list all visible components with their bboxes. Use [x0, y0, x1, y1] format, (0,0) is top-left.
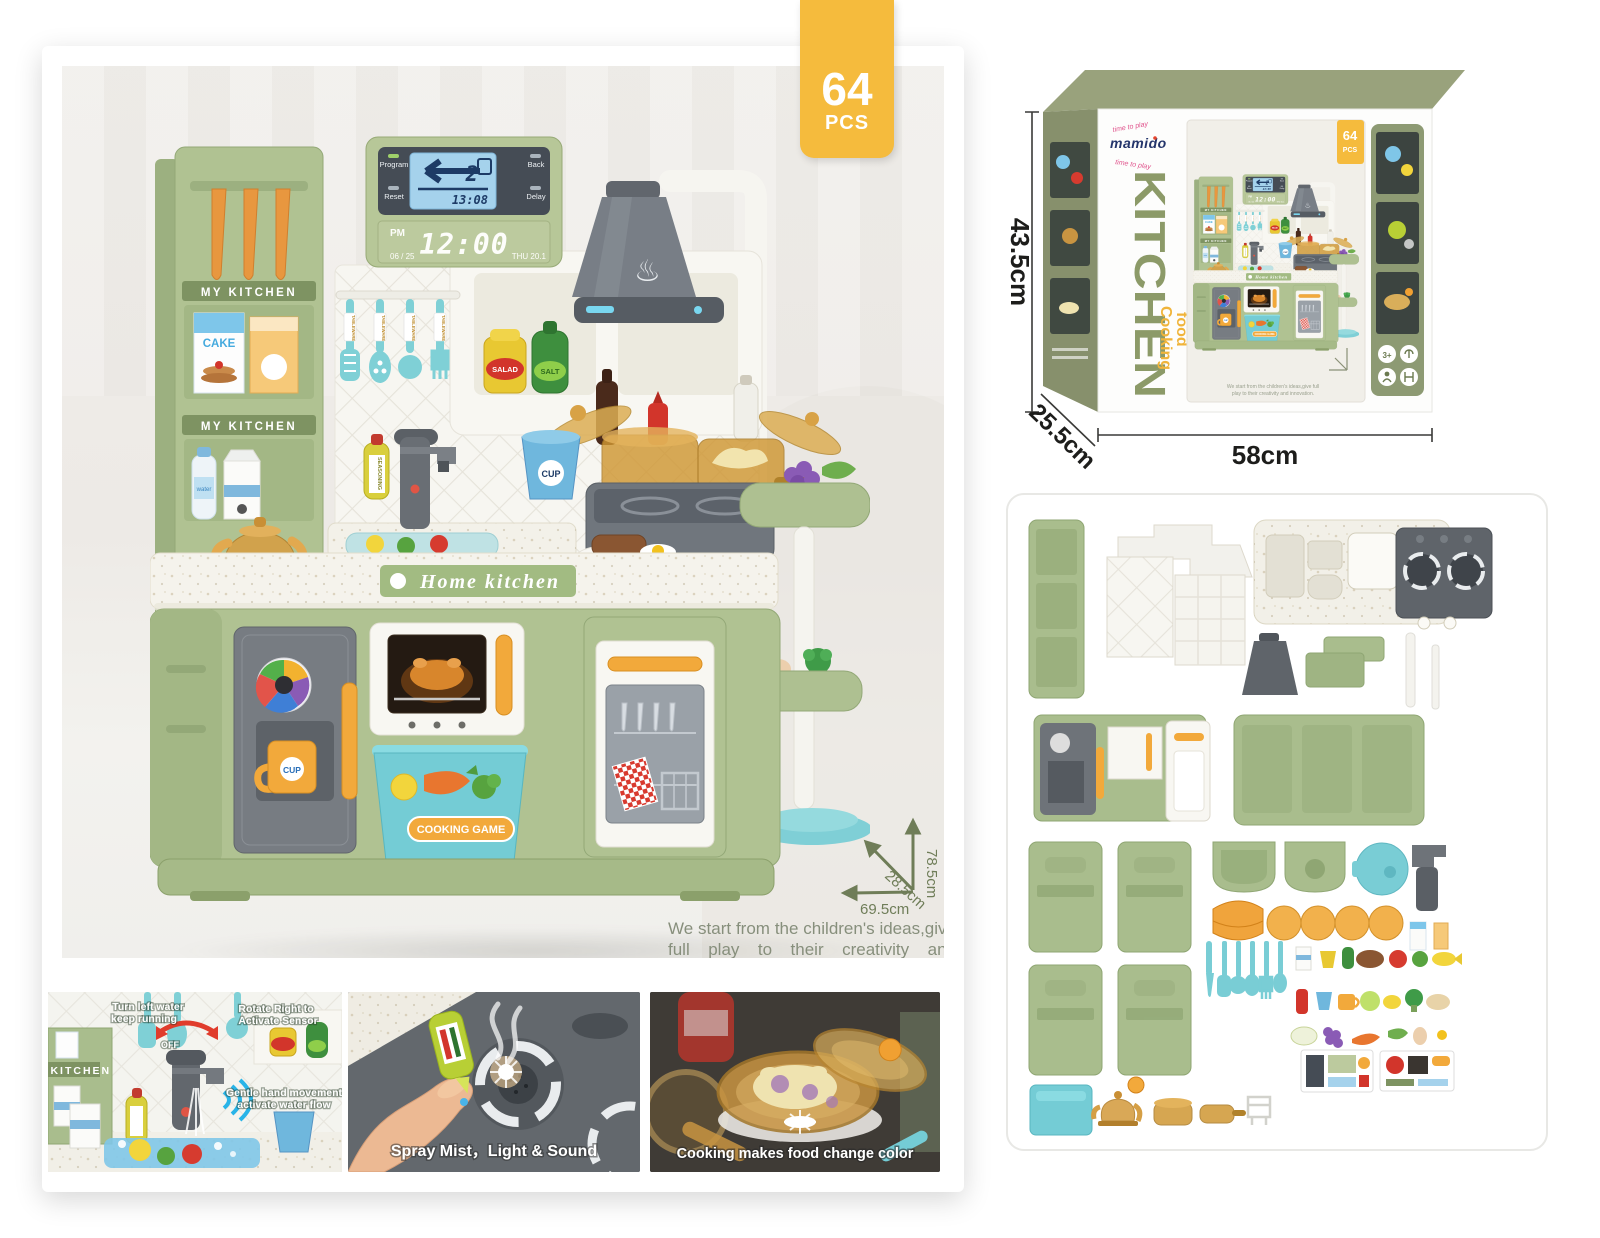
box-top-face	[1043, 70, 1465, 112]
p1-label1-line1: Turn left water	[112, 1001, 184, 1013]
marketing-caption: We start from the children's ideas,give …	[668, 918, 944, 958]
part-hood	[1242, 633, 1298, 695]
part-side-panels	[1029, 842, 1191, 1075]
p1-label2-line1: Rotate Right to	[238, 1003, 313, 1015]
dim-width: 69.5cm	[860, 901, 909, 918]
mini-blue-cup	[274, 1112, 314, 1152]
box-badge-unit: PCS	[1343, 147, 1358, 154]
part-foods-row1	[1296, 947, 1462, 970]
p1-label3-line1: Gentle hand movement	[226, 1087, 342, 1099]
box-right-panel: 3+	[1371, 124, 1424, 396]
main-photo: 78.5cm 28.5cm 69.5cm We start from the c…	[62, 66, 944, 958]
part-small-lid	[1128, 1077, 1144, 1093]
box-caption-line2: play to their creativity and innovation.	[1232, 391, 1314, 397]
part-backsplash	[1107, 525, 1252, 665]
brand-name: mamido	[1110, 135, 1167, 151]
part-stove	[1396, 528, 1492, 629]
box-side-thumbnails	[1050, 142, 1090, 359]
box-product-photo: 64 PCS We start from the children's idea…	[1187, 120, 1365, 402]
part-tubes	[1406, 633, 1439, 709]
part-sticker-sheet-1	[1301, 1050, 1373, 1092]
water-drop	[460, 1098, 468, 1106]
part-foods-row3	[1291, 1027, 1453, 1048]
part-teal-basin	[1030, 1085, 1092, 1135]
part-pan	[1200, 1105, 1246, 1123]
p1-off-label: OFF	[161, 1040, 179, 1050]
part-foods-row2	[1296, 989, 1450, 1014]
part-sinks	[1213, 842, 1345, 892]
part-back-panel	[1234, 715, 1424, 825]
part-sticker-sheet-2	[1380, 1051, 1454, 1091]
dim-height: 78.5cm	[923, 849, 940, 898]
part-teapot	[1094, 1091, 1140, 1126]
feature-photo-spray: Spray Mist，Light & Sound	[348, 992, 640, 1172]
burner-hole	[572, 1013, 628, 1039]
box-badge-count: 64	[1343, 128, 1358, 143]
packaging-box: time to play mamido time to play KITCHEN…	[995, 50, 1520, 470]
parts-overview-panel	[1006, 493, 1548, 1151]
p1-label1-line2: keep running	[111, 1013, 177, 1025]
burner	[472, 1038, 564, 1130]
caption-line2: play to their creativity and innovation.	[668, 940, 944, 958]
box-subtitle-1: Cooking	[1157, 306, 1174, 370]
piece-count-badge: 64 PCS	[800, 0, 894, 158]
part-utensils	[1206, 941, 1287, 999]
piece-count-number: 64	[800, 66, 894, 112]
feature-photo-color-change: Cooking makes food change color	[650, 992, 940, 1172]
part-food-boxes	[1410, 922, 1448, 950]
mini-shelf-label: MY KITCHEN	[48, 1065, 111, 1077]
kitchen-playset-illustration	[150, 85, 870, 905]
part-rack	[1248, 1097, 1270, 1125]
feature-photo-faucet: MY KITCHEN	[48, 992, 342, 1172]
p1-label3-line2: activate water flow	[237, 1099, 331, 1111]
p1-label2-line2: Activate Sensor	[238, 1015, 317, 1027]
part-shelf-frame	[1029, 520, 1084, 698]
box-dim-height: 43.5cm	[1005, 218, 1035, 306]
box-dim-width: 58cm	[1232, 440, 1299, 470]
part-green-brackets	[1306, 637, 1384, 687]
part-teal-lid	[1352, 843, 1408, 895]
part-faucet	[1412, 845, 1446, 911]
part-countertop	[1254, 520, 1492, 629]
p3-caption: Cooking makes food change color	[677, 1146, 914, 1162]
main-product-card: 78.5cm 28.5cm 69.5cm We start from the c…	[42, 46, 964, 1192]
box-dim-depth: 25.5cm	[1024, 399, 1101, 470]
p2-caption: Spray Mist，Light & Sound	[391, 1143, 597, 1160]
part-pot	[1154, 1098, 1192, 1125]
age-rating: 3+	[1382, 351, 1391, 360]
part-front-assembly	[1034, 715, 1210, 821]
part-buns	[1213, 901, 1403, 940]
box-caption-line1: We start from the children's ideas,give …	[1227, 384, 1319, 390]
piece-count-unit: PCS	[800, 112, 894, 135]
mini-milk-carton	[70, 1104, 100, 1148]
